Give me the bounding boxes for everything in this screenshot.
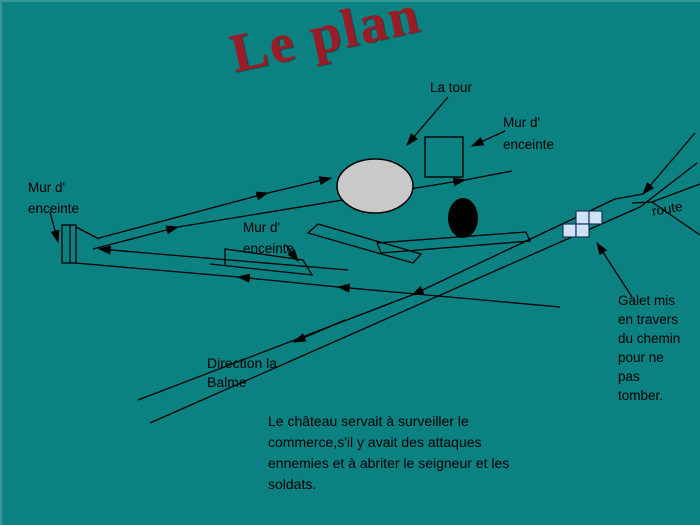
wall-right-pointer-arrow bbox=[472, 131, 505, 146]
galet-pointer-arrow bbox=[597, 243, 632, 297]
label-direction-la-balme: Direction la Balme bbox=[207, 354, 277, 392]
label-wall-left: Mur d' enceinte bbox=[28, 177, 79, 219]
tour-pointer-arrow bbox=[407, 97, 448, 145]
label-wall-center: Mur d' enceinte bbox=[243, 217, 294, 259]
label-la-tour: La tour bbox=[430, 77, 472, 98]
well-ellipse bbox=[448, 198, 478, 238]
keep-rectangle bbox=[425, 137, 463, 177]
tower-ellipse bbox=[337, 159, 413, 213]
left-wall-shape bbox=[62, 225, 76, 263]
direction-arrow bbox=[294, 320, 345, 342]
slide: { "slide": { "title": "Le plan", "backgr… bbox=[0, 0, 700, 525]
wall-blade-1 bbox=[308, 224, 421, 263]
label-wall-right: Mur d' enceinte bbox=[503, 112, 554, 156]
label-galet: Galet mis en travers du chemin pour ne p… bbox=[618, 291, 680, 405]
enceinte-wall-lines bbox=[62, 171, 560, 307]
caption-text: Le château servait à surveiller le comme… bbox=[268, 411, 568, 495]
galet-squares bbox=[563, 211, 602, 237]
